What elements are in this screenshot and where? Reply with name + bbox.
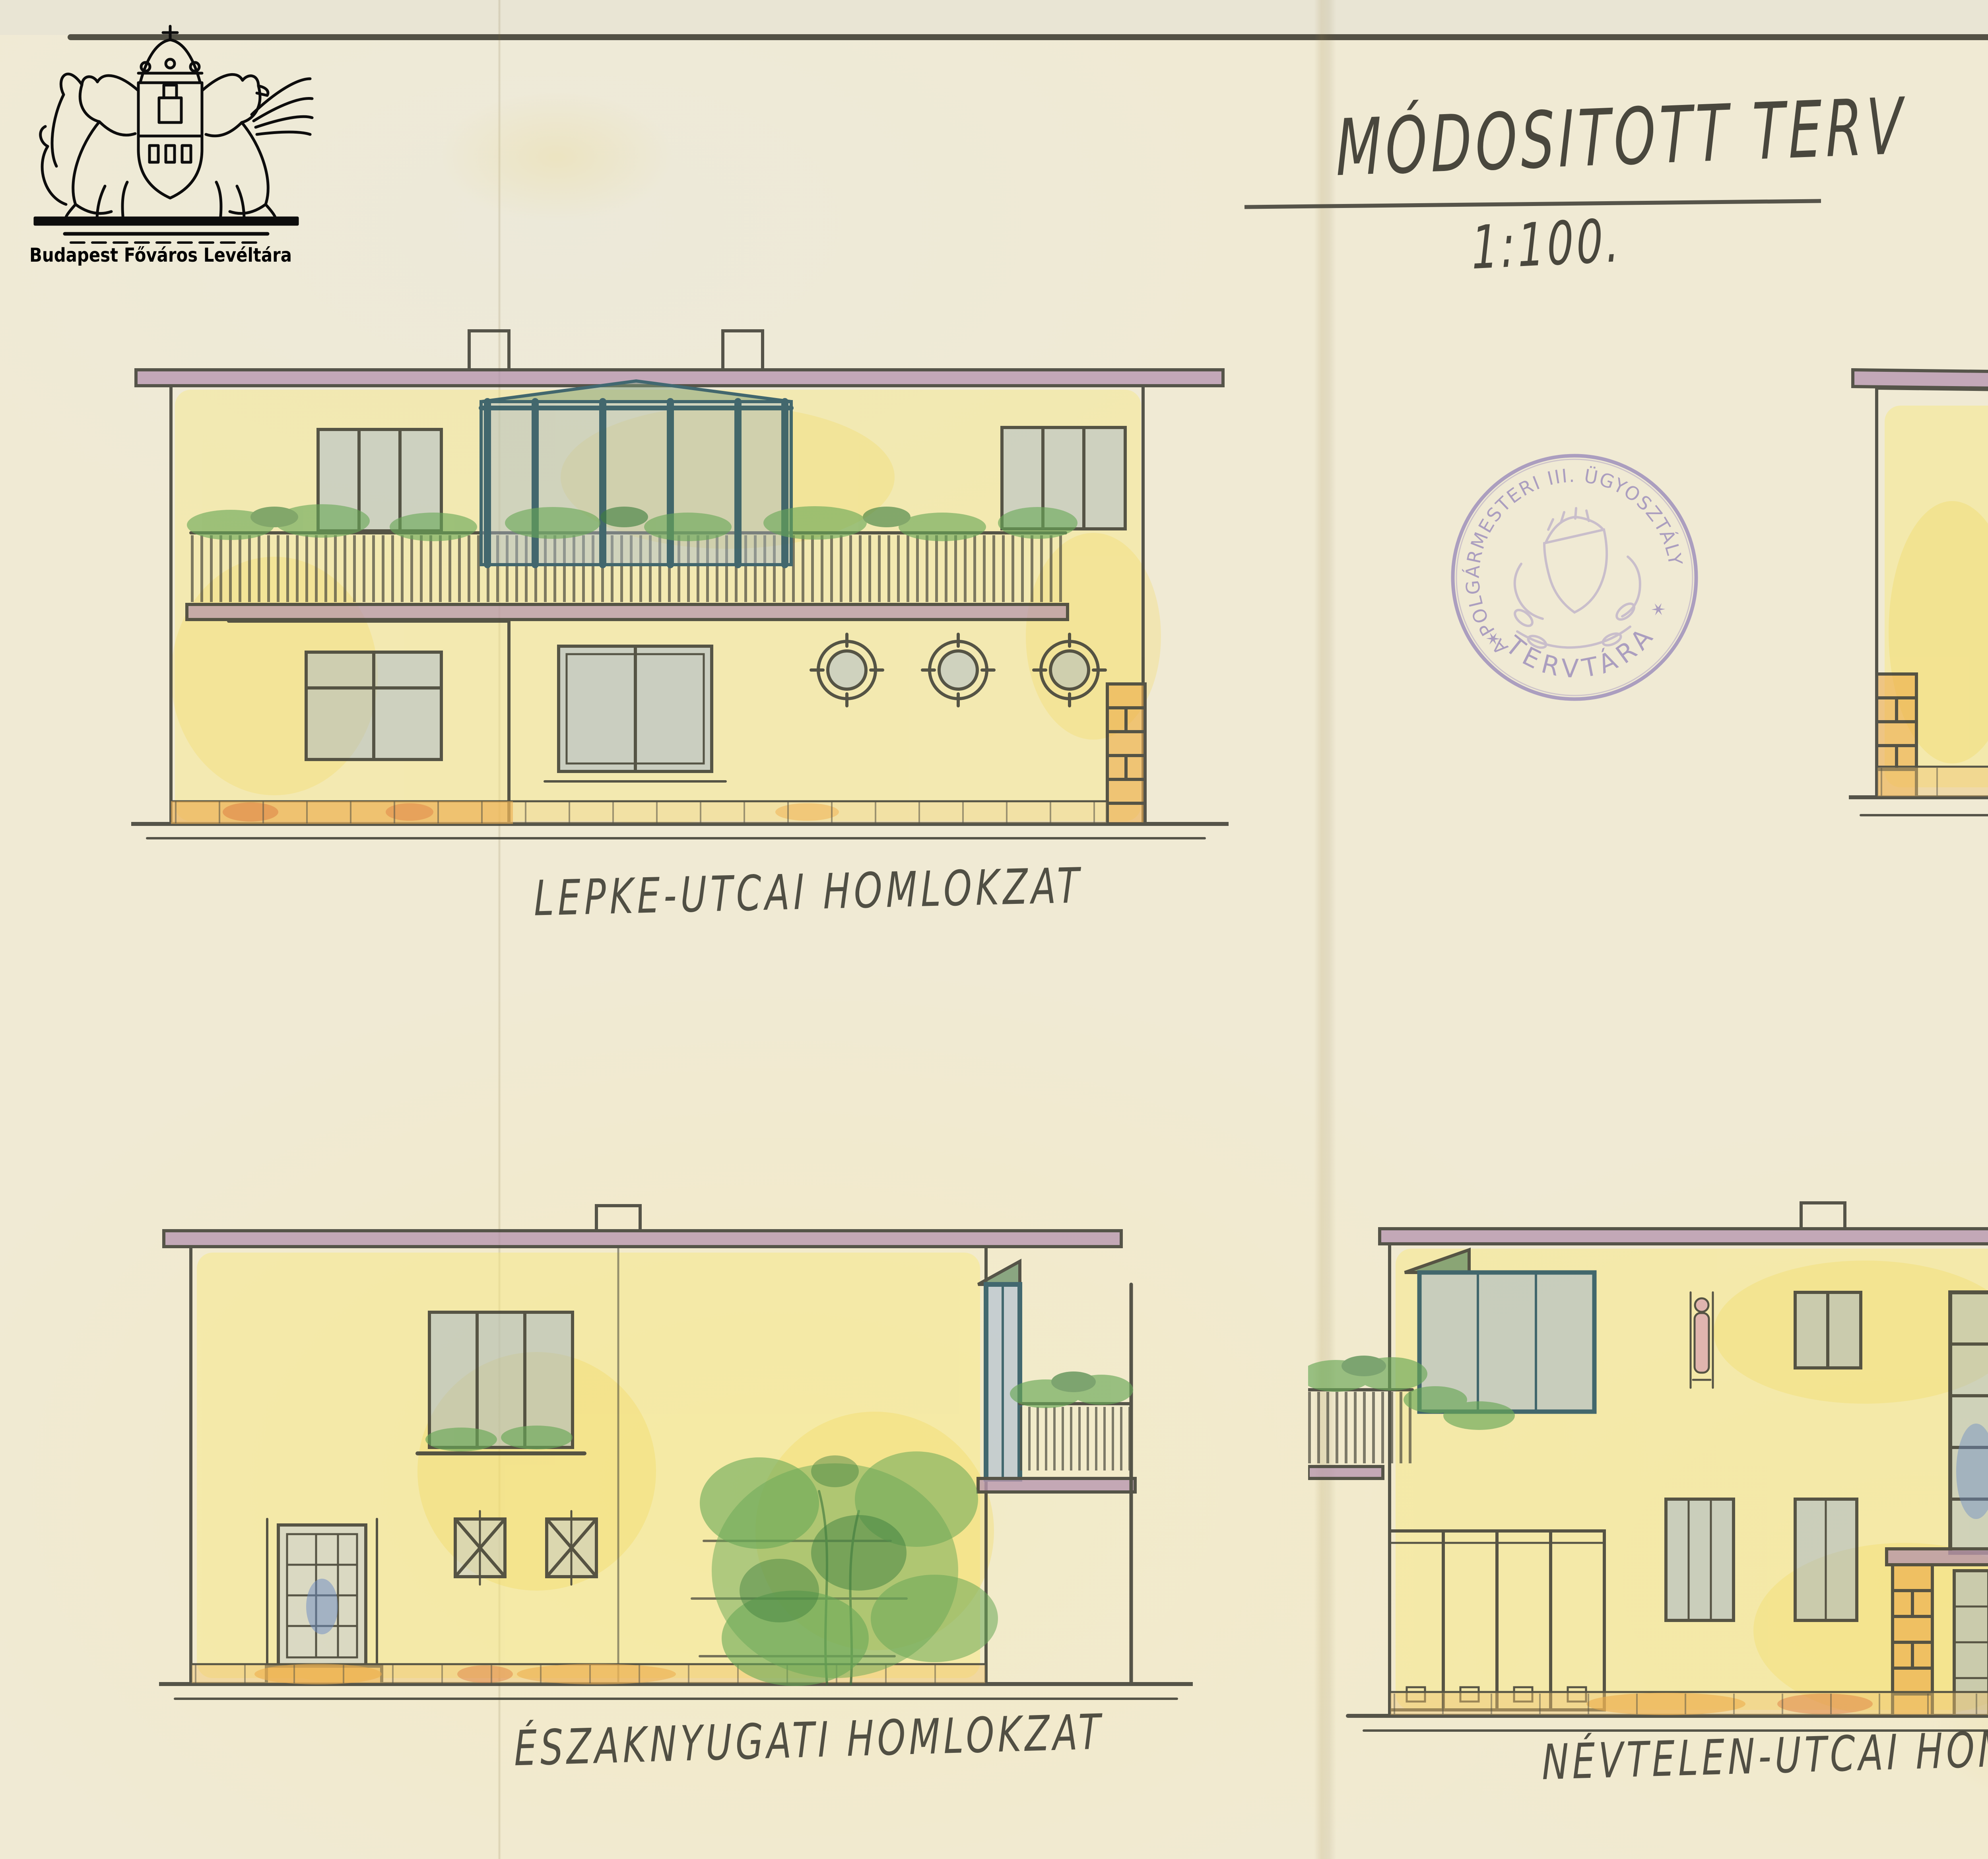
label-nevtelen: NÉVTELEN-UTCAI HOMLOKZAT: [1541, 1725, 1988, 1787]
label-northwest: ÉSZAKNYUGATI HOMLOKZAT: [514, 1711, 973, 1773]
scan-edge-line: [68, 34, 1988, 40]
logo-shield: [138, 83, 202, 198]
sheet-scale: 1:100.: [1329, 204, 1765, 285]
roof-band: [1380, 1229, 1988, 1244]
archive-caption: Budapest Főváros Levéltára: [29, 244, 292, 266]
entrance-canopy: [1887, 1549, 1988, 1565]
balcony-wing: [978, 1261, 1135, 1684]
elevation-northwest-drawing: [159, 1193, 1193, 1726]
sheet-title: MÓDOSITOTT TERV: [1335, 93, 1758, 188]
elevation-northeast-drawing: [1849, 314, 1988, 871]
logo-lion: [41, 74, 138, 221]
roof-band: [136, 370, 1223, 386]
stamp-star-right: ✶: [1646, 596, 1670, 623]
entrance-door: [266, 1519, 382, 1684]
stamp-crest: [1512, 508, 1640, 650]
logo-baseline: [35, 218, 297, 224]
logo-crown: [140, 40, 200, 82]
elevation-nevtelen-drawing: 7,95: [1308, 1193, 1988, 1750]
upper-small-window: [1795, 1292, 1861, 1368]
conservatory: [481, 381, 791, 565]
climbing-plant: [700, 1451, 998, 1686]
roof-band: [1853, 370, 1988, 399]
stamp-text-bottom: TERVTÁRA: [1500, 619, 1662, 684]
lower-window-left: [306, 652, 441, 760]
stone-base: [171, 801, 1107, 824]
stair-window: [1950, 1292, 1988, 1555]
scanned-plan-sheet: Budapest Főváros Levéltára MÓDOSITOTT TE…: [0, 0, 1988, 1859]
svg-text:TERVTÁRA: TERVTÁRA: [1500, 619, 1662, 684]
office-stamp: A POLGÁRMESTERI III. ÜGYOSZTÁLY TERVTÁRA…: [1442, 445, 1707, 710]
corner-stone-quoin: [1107, 684, 1145, 824]
glass-door: [545, 646, 726, 781]
logo-griffin: [202, 74, 312, 221]
stone-base: [1877, 767, 1988, 797]
elevation-lepke-drawing: [131, 310, 1229, 851]
label-lepke: LEPKE-UTCAI HOMLOKZAT: [534, 863, 993, 923]
paper-stain: [437, 91, 676, 223]
terrace-band: [187, 604, 1068, 620]
archive-logo: Budapest Főváros Levéltára: [19, 14, 325, 273]
stone-base: [1390, 1692, 1988, 1716]
roof-band: [164, 1231, 1121, 1247]
